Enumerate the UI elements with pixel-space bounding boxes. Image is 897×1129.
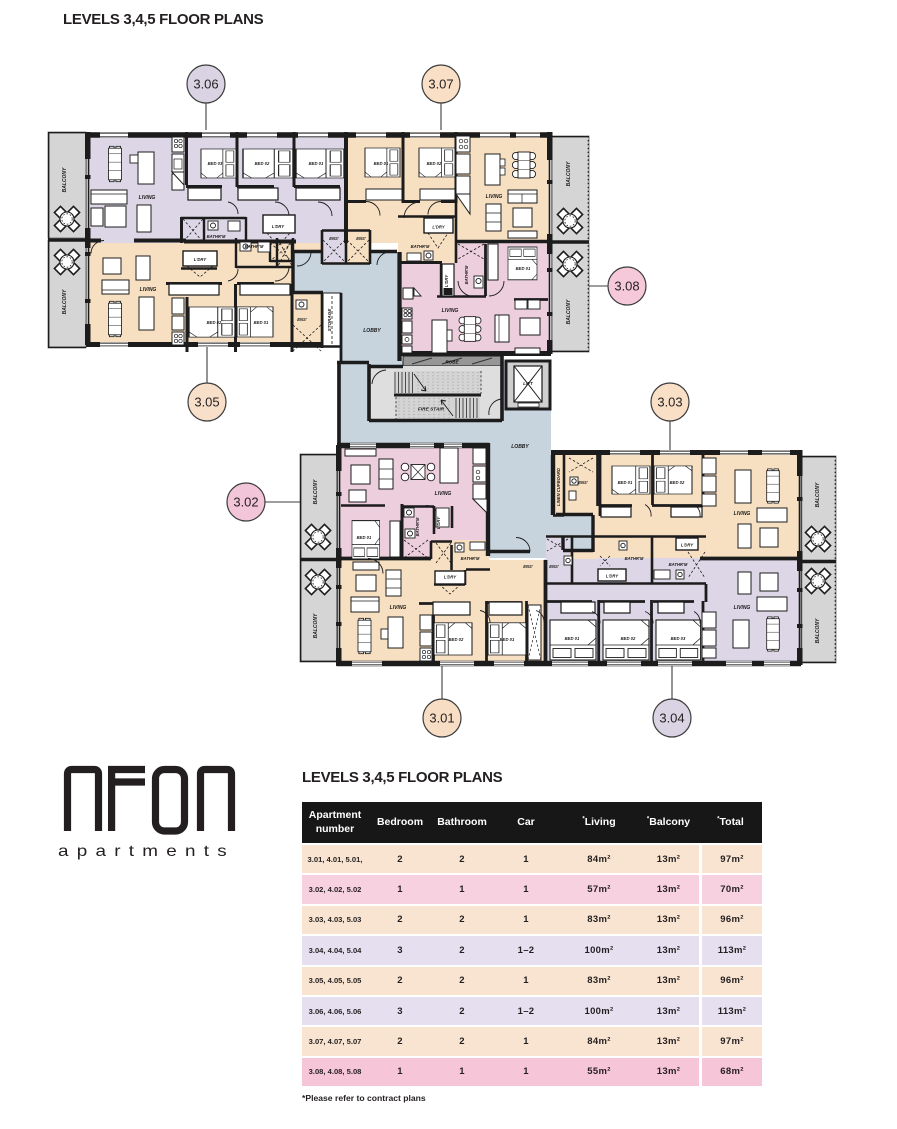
svg-text:BATHR'M: BATHR'M	[411, 244, 430, 249]
svg-text:L'DRY: L'DRY	[606, 574, 620, 579]
svg-text:L'DRY: L'DRY	[444, 575, 458, 580]
svg-text:ROBE: ROBE	[445, 360, 459, 365]
svg-text:BED 02: BED 02	[449, 637, 464, 642]
svg-text:BED 01: BED 01	[357, 535, 372, 540]
svg-text:BATHR'M: BATHR'M	[669, 562, 688, 567]
svg-text:ENS': ENS'	[549, 564, 560, 569]
svg-text:BED 02: BED 02	[621, 636, 636, 641]
svg-text:L'DRY: L'DRY	[436, 516, 441, 530]
svg-text:ENS': ENS'	[523, 564, 534, 569]
svg-text:L'DRY: L'DRY	[444, 274, 449, 288]
svg-text:BATHR'M: BATHR'M	[415, 517, 420, 536]
svg-text:BED 02: BED 02	[670, 480, 685, 485]
svg-text:BALCONY: BALCONY	[566, 299, 572, 324]
svg-text:BED 03: BED 03	[208, 161, 223, 166]
svg-text:LOBBY: LOBBY	[511, 444, 529, 450]
svg-text:ENS': ENS'	[356, 236, 367, 241]
svg-text:LOBBY: LOBBY	[363, 328, 381, 334]
svg-text:BALCONY: BALCONY	[815, 482, 821, 507]
svg-text:BATHR'M: BATHR'M	[207, 234, 226, 239]
svg-text:BATHR'M: BATHR'M	[464, 265, 469, 284]
svg-text:LIVING: LIVING	[734, 511, 751, 517]
svg-text:BED 01: BED 01	[254, 320, 269, 325]
svg-text:LIVING: LIVING	[442, 308, 459, 314]
svg-text:BALCONY: BALCONY	[313, 479, 319, 504]
svg-text:BALCONY: BALCONY	[313, 613, 319, 638]
svg-text:BED 03: BED 03	[671, 636, 686, 641]
svg-text:BED 01: BED 01	[500, 637, 515, 642]
svg-text:BED 01: BED 01	[374, 161, 389, 166]
svg-text:BED 02: BED 02	[207, 320, 222, 325]
svg-text:LIVING: LIVING	[486, 194, 503, 200]
svg-text:L'DRY: L'DRY	[432, 225, 446, 230]
svg-text:STORAGE: STORAGE	[327, 308, 332, 332]
svg-text:LIVING: LIVING	[435, 491, 452, 497]
svg-text:LIFT: LIFT	[523, 381, 534, 386]
svg-text:BED 01: BED 01	[565, 636, 580, 641]
svg-text:BALCONY: BALCONY	[815, 618, 821, 643]
svg-text:L'DRY: L'DRY	[272, 224, 286, 229]
svg-text:BATHR'M: BATHR'M	[245, 244, 264, 249]
svg-text:L'DRY: L'DRY	[194, 257, 208, 262]
svg-text:BED 01: BED 01	[618, 480, 633, 485]
svg-text:3.05: 3.05	[194, 395, 219, 410]
svg-text:BALCONY: BALCONY	[62, 167, 68, 192]
svg-text:3.02: 3.02	[233, 495, 258, 510]
svg-text:BALCONY: BALCONY	[62, 289, 68, 314]
svg-text:BED 01: BED 01	[309, 161, 324, 166]
svg-text:BED 01: BED 01	[516, 266, 531, 271]
svg-text:LIVING: LIVING	[140, 287, 157, 293]
svg-text:LIVING: LIVING	[734, 605, 751, 611]
svg-text:BED 02: BED 02	[427, 161, 442, 166]
svg-text:apartments: apartments	[58, 843, 235, 860]
svg-text:3.04: 3.04	[659, 711, 684, 726]
svg-text:BED 02: BED 02	[255, 161, 270, 166]
svg-text:ENS': ENS'	[297, 317, 308, 322]
svg-text:LIVING: LIVING	[139, 195, 156, 201]
svg-text:ENS': ENS'	[329, 236, 340, 241]
svg-text:3.01: 3.01	[429, 711, 454, 726]
svg-text:BATHR'M: BATHR'M	[461, 556, 480, 561]
svg-text:3.07: 3.07	[428, 77, 453, 92]
svg-text:LINEN CUPBOARD: LINEN CUPBOARD	[556, 468, 561, 506]
svg-text:3.06: 3.06	[193, 77, 218, 92]
svg-text:BALCONY: BALCONY	[566, 161, 572, 186]
svg-text:FIRE STAIR: FIRE STAIR	[418, 407, 445, 413]
svg-text:ENS': ENS'	[578, 480, 589, 485]
svg-text:3.03: 3.03	[657, 395, 682, 410]
svg-text:BATHR'M: BATHR'M	[625, 556, 644, 561]
svg-text:LIVING: LIVING	[390, 605, 407, 611]
svg-text:L'DRY: L'DRY	[681, 543, 695, 548]
svg-text:3.08: 3.08	[614, 279, 639, 294]
